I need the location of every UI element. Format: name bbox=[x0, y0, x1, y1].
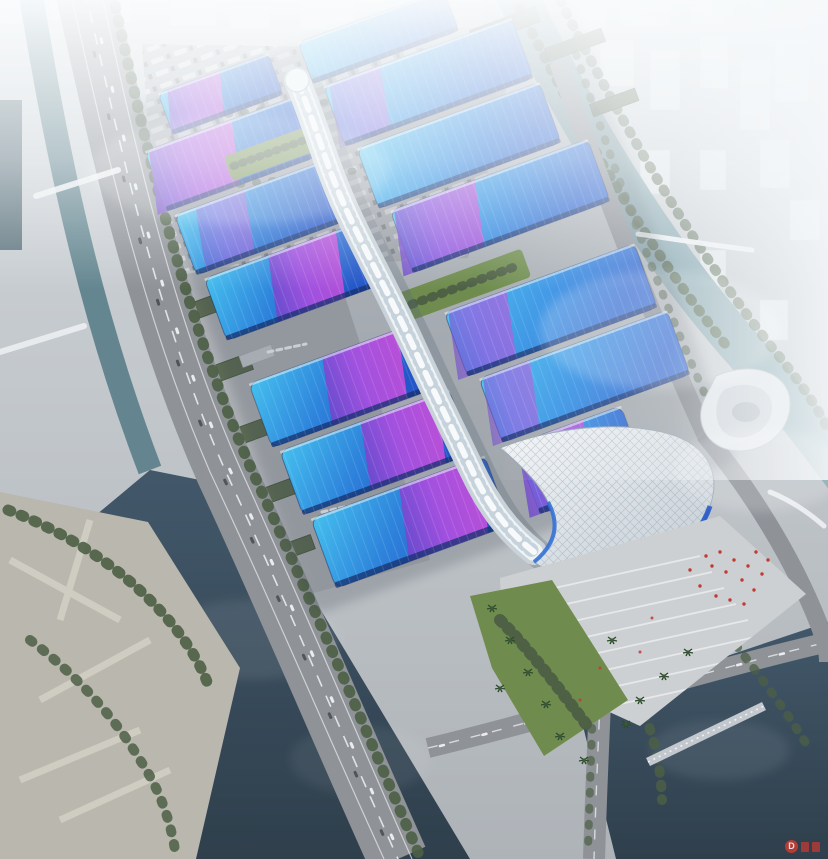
watermark-symbol: D bbox=[785, 840, 798, 853]
aerial-rendering-exhibition-center: D bbox=[0, 0, 828, 859]
watermark-logo: D bbox=[785, 840, 820, 853]
scene-svg bbox=[0, 0, 828, 859]
watermark-glyph bbox=[801, 842, 809, 852]
watermark-glyph bbox=[812, 842, 820, 852]
